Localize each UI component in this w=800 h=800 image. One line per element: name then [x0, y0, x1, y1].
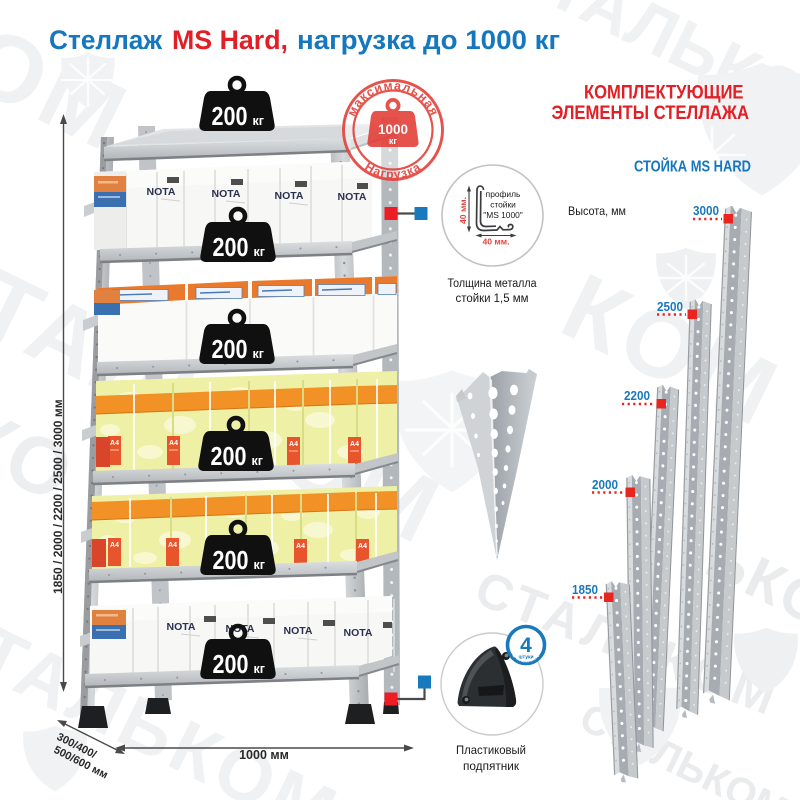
svg-text:40 мм.: 40 мм. [482, 237, 509, 247]
svg-text:A4: A4 [350, 441, 359, 448]
svg-text:40 мм.: 40 мм. [458, 197, 468, 224]
svg-text:Толщина металла: Толщина металла [448, 278, 538, 290]
svg-text:1850: 1850 [572, 582, 598, 597]
svg-text:NOTA: NOTA [167, 621, 196, 633]
svg-text:MS Hard,: MS Hard, [172, 25, 288, 55]
svg-text:3000: 3000 [693, 203, 719, 218]
svg-text:NOTA: NOTA [275, 190, 304, 202]
svg-text:"MS 1000": "MS 1000" [483, 210, 522, 220]
svg-text:стойки 1,5 мм: стойки 1,5 мм [456, 293, 529, 305]
svg-text:A4: A4 [110, 542, 119, 549]
svg-text:СТОЙКА MS HARD: СТОЙКА MS HARD [634, 158, 751, 176]
svg-text:нагрузка до 1000 кг: нагрузка до 1000 кг [297, 25, 560, 55]
svg-text:подпятник: подпятник [463, 759, 520, 773]
svg-text:Высота, мм: Высота, мм [568, 204, 626, 218]
svg-text:A4: A4 [296, 543, 305, 550]
svg-text:NOTA: NOTA [147, 186, 176, 198]
svg-text:2500: 2500 [657, 299, 683, 314]
svg-text:NOTA: NOTA [338, 191, 367, 203]
svg-text:NOTA: NOTA [284, 625, 313, 637]
svg-text:A4: A4 [289, 441, 298, 448]
svg-text:1000: 1000 [378, 122, 408, 137]
svg-text:2000: 2000 [592, 477, 618, 492]
svg-text:1000 мм: 1000 мм [239, 748, 289, 762]
svg-text:КОМПЛЕКТУЮЩИЕ: КОМПЛЕКТУЮЩИЕ [584, 83, 744, 104]
svg-text:Стеллаж: Стеллаж [49, 25, 163, 55]
svg-text:ЭЛЕМЕНТЫ СТЕЛЛАЖА: ЭЛЕМЕНТЫ СТЕЛЛАЖА [552, 103, 750, 124]
svg-text:2200: 2200 [624, 388, 650, 403]
svg-text:кг: кг [389, 136, 398, 146]
svg-text:1850 / 2000 / 2200 / 2500 / 30: 1850 / 2000 / 2200 / 2500 / 3000 мм [51, 399, 65, 594]
svg-text:профиль: профиль [486, 189, 521, 199]
svg-text:A4: A4 [168, 542, 177, 549]
svg-text:A4: A4 [358, 543, 367, 550]
svg-text:A4: A4 [110, 440, 119, 447]
svg-text:NOTA: NOTA [344, 627, 373, 639]
svg-text:стойки: стойки [490, 200, 516, 210]
svg-text:NOTA: NOTA [212, 188, 241, 200]
svg-text:Пластиковый: Пластиковый [456, 743, 526, 757]
svg-text:A4: A4 [169, 440, 178, 447]
